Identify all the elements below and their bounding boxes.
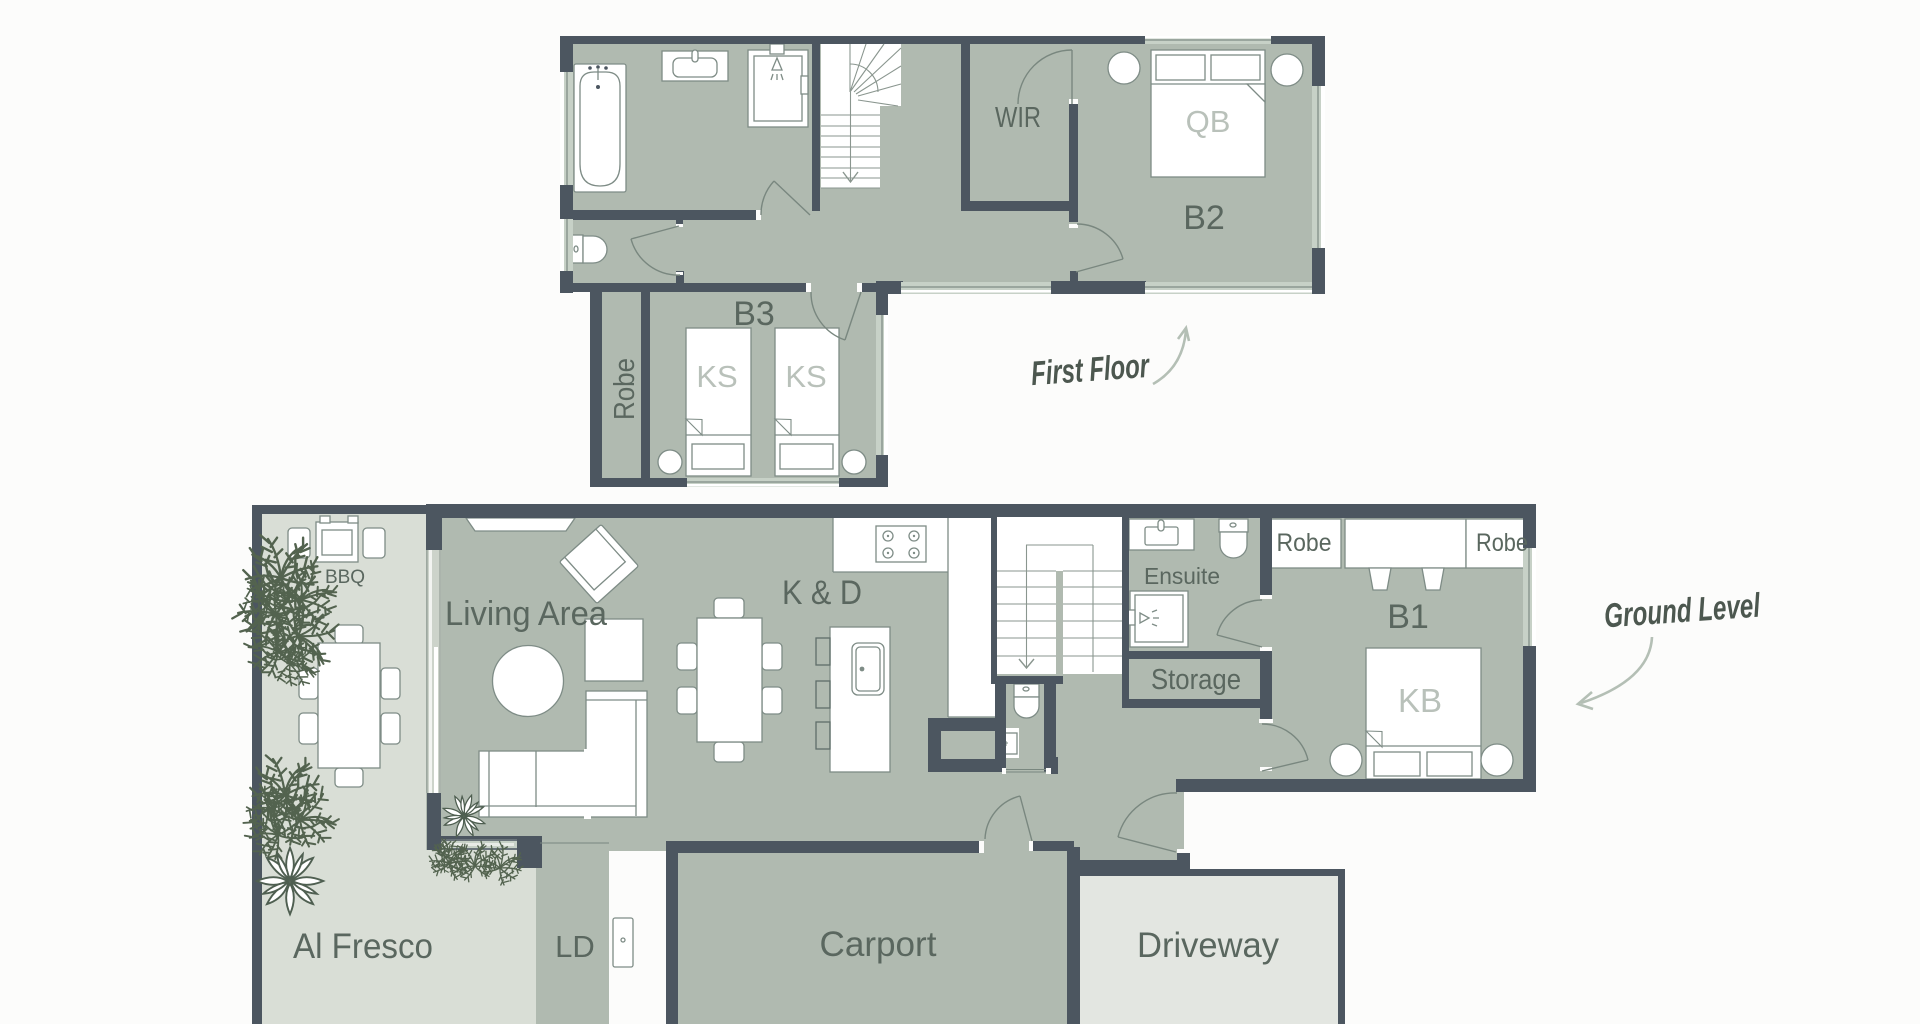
svg-text:K & D: K & D (782, 574, 862, 612)
svg-text:B3: B3 (733, 295, 775, 333)
svg-text:KS: KS (785, 359, 826, 394)
svg-text:LD: LD (555, 929, 595, 964)
svg-text:KS: KS (696, 359, 737, 394)
svg-text:Robe: Robe (1277, 529, 1332, 557)
svg-text:WIR: WIR (995, 102, 1041, 134)
svg-text:BBQ: BBQ (325, 567, 365, 588)
svg-text:Carport: Carport (820, 925, 937, 964)
svg-text:B2: B2 (1183, 199, 1225, 237)
svg-text:Robe: Robe (1476, 529, 1528, 557)
svg-text:Robe: Robe (609, 358, 641, 420)
svg-text:Living Area: Living Area (445, 595, 607, 633)
svg-text:Al Fresco: Al Fresco (293, 927, 433, 966)
svg-text:Driveway: Driveway (1137, 926, 1279, 965)
svg-text:Storage: Storage (1151, 664, 1241, 696)
svg-text:B1: B1 (1387, 598, 1429, 636)
svg-text:KB: KB (1398, 682, 1442, 719)
svg-text:Ensuite: Ensuite (1144, 563, 1220, 589)
svg-text:QB: QB (1186, 104, 1231, 139)
